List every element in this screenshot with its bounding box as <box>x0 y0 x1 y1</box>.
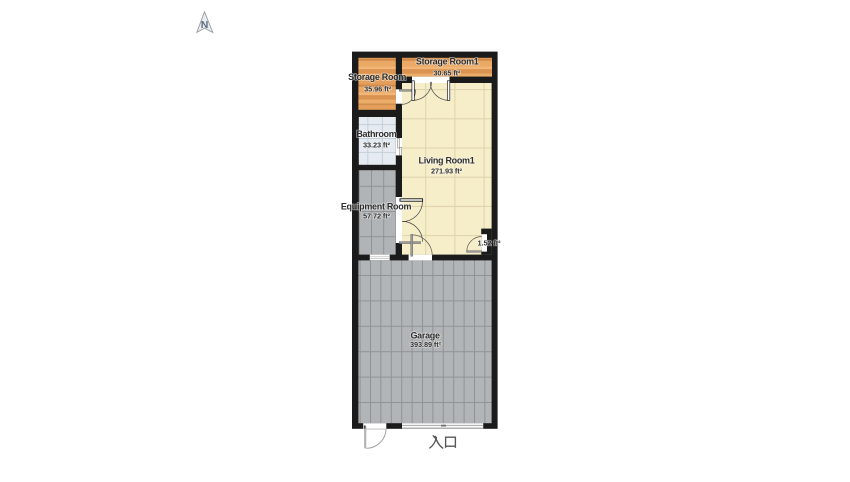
svg-text:35.96 ft²: 35.96 ft² <box>364 84 392 93</box>
svg-text:30.65 ft²: 30.65 ft² <box>433 68 461 77</box>
svg-text:Equipment Room: Equipment Room <box>341 202 412 212</box>
svg-text:271.93 ft²: 271.93 ft² <box>431 167 463 176</box>
svg-text:1.52 ft²: 1.52 ft² <box>477 239 501 248</box>
svg-text:Garage: Garage <box>410 331 440 341</box>
svg-text:33.23 ft²: 33.23 ft² <box>363 141 391 150</box>
svg-text:393.89 ft²: 393.89 ft² <box>410 340 442 349</box>
svg-text:Storage Room: Storage Room <box>348 72 406 82</box>
svg-text:N: N <box>201 19 209 31</box>
svg-text:Living Room1: Living Room1 <box>419 156 475 166</box>
svg-text:57.72 ft²: 57.72 ft² <box>363 211 391 220</box>
svg-text:Bathroom: Bathroom <box>356 129 396 139</box>
svg-text:Storage Room1: Storage Room1 <box>416 57 479 67</box>
